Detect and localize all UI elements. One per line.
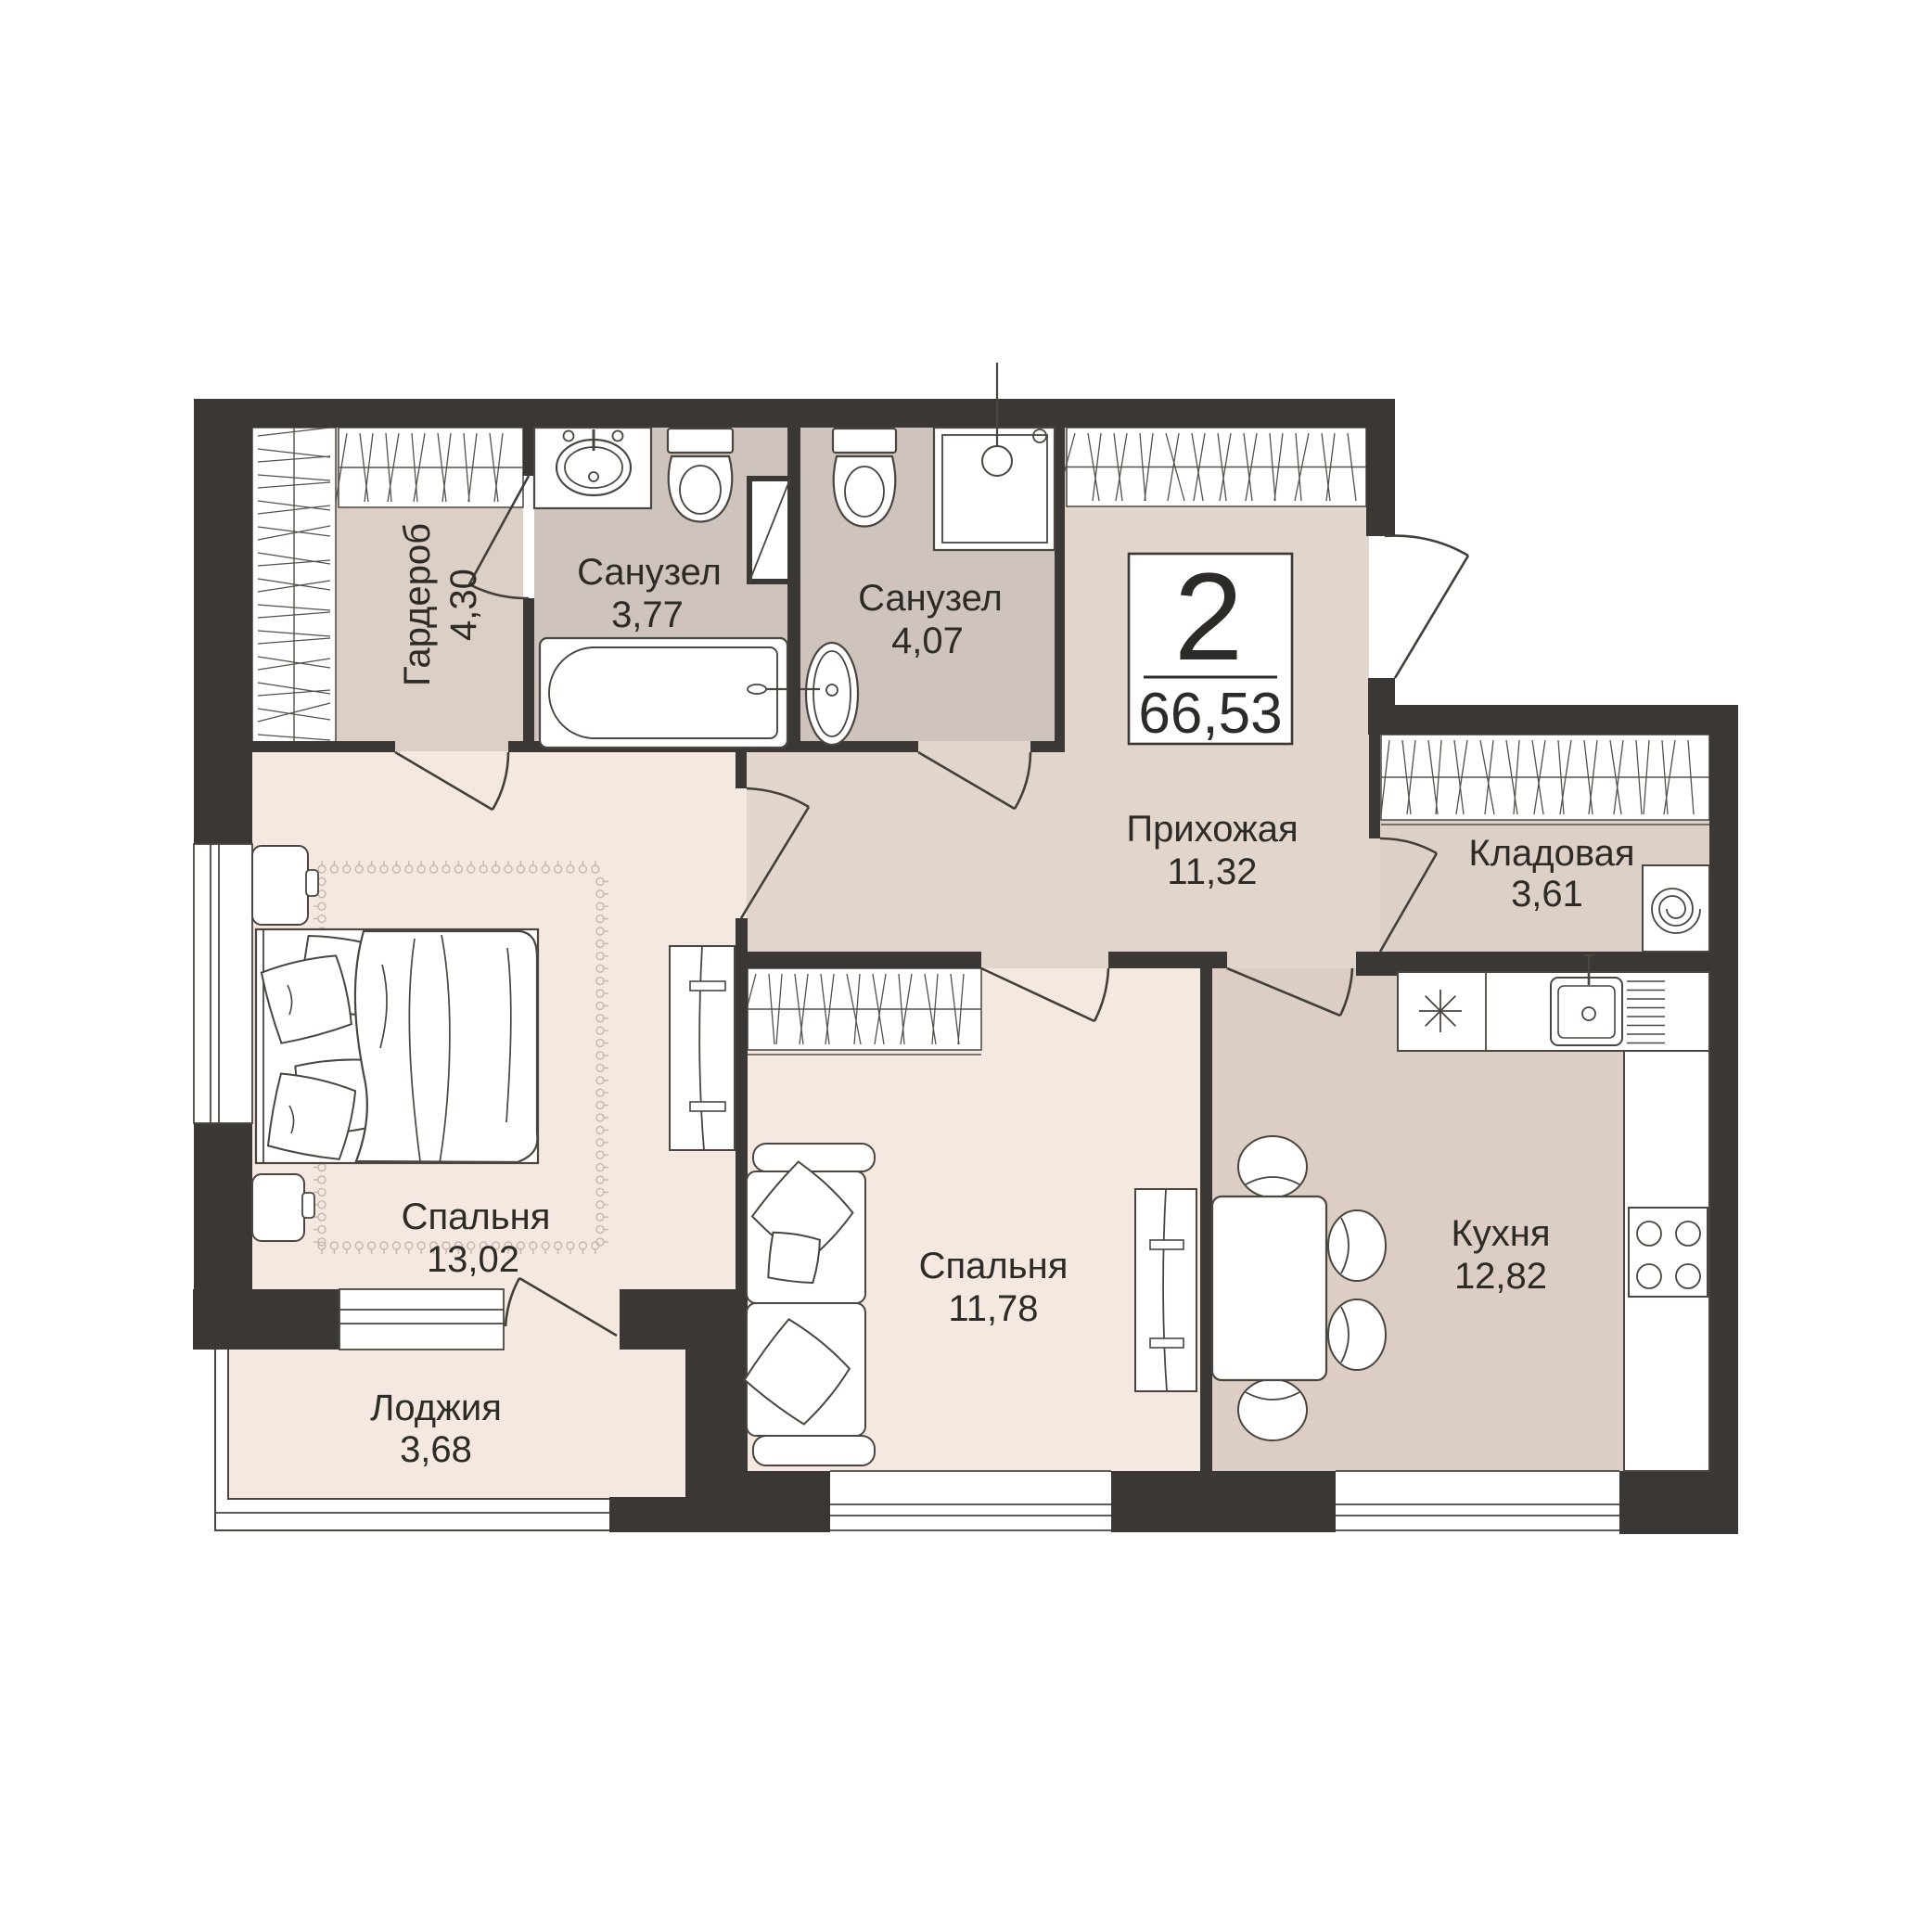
svg-text:Лоджия: Лоджия [370,1388,502,1428]
svg-text:11,32: 11,32 [1167,851,1257,892]
svg-text:11,78: 11,78 [948,1288,1038,1329]
svg-text:12,82: 12,82 [1454,1256,1547,1297]
svg-text:Кухня: Кухня [1451,1213,1550,1254]
svg-text:Санузел: Санузел [858,578,1003,619]
svg-text:Гардероб: Гардероб [397,523,438,686]
svg-text:Кладовая: Кладовая [1468,833,1634,874]
svg-text:4,30: 4,30 [443,569,484,641]
svg-text:Санузел: Санузел [577,552,722,593]
svg-text:3,77: 3,77 [611,595,684,635]
svg-text:3,61: 3,61 [1511,874,1583,915]
svg-text:Прихожая: Прихожая [1126,809,1298,850]
svg-text:Спальня: Спальня [919,1246,1068,1286]
svg-text:13,02: 13,02 [427,1239,519,1280]
svg-text:4,07: 4,07 [891,621,964,661]
svg-text:Спальня: Спальня [402,1196,551,1237]
svg-text:2: 2 [1174,548,1244,686]
svg-text:66,53: 66,53 [1138,682,1282,746]
svg-text:3,68: 3,68 [400,1429,472,1470]
